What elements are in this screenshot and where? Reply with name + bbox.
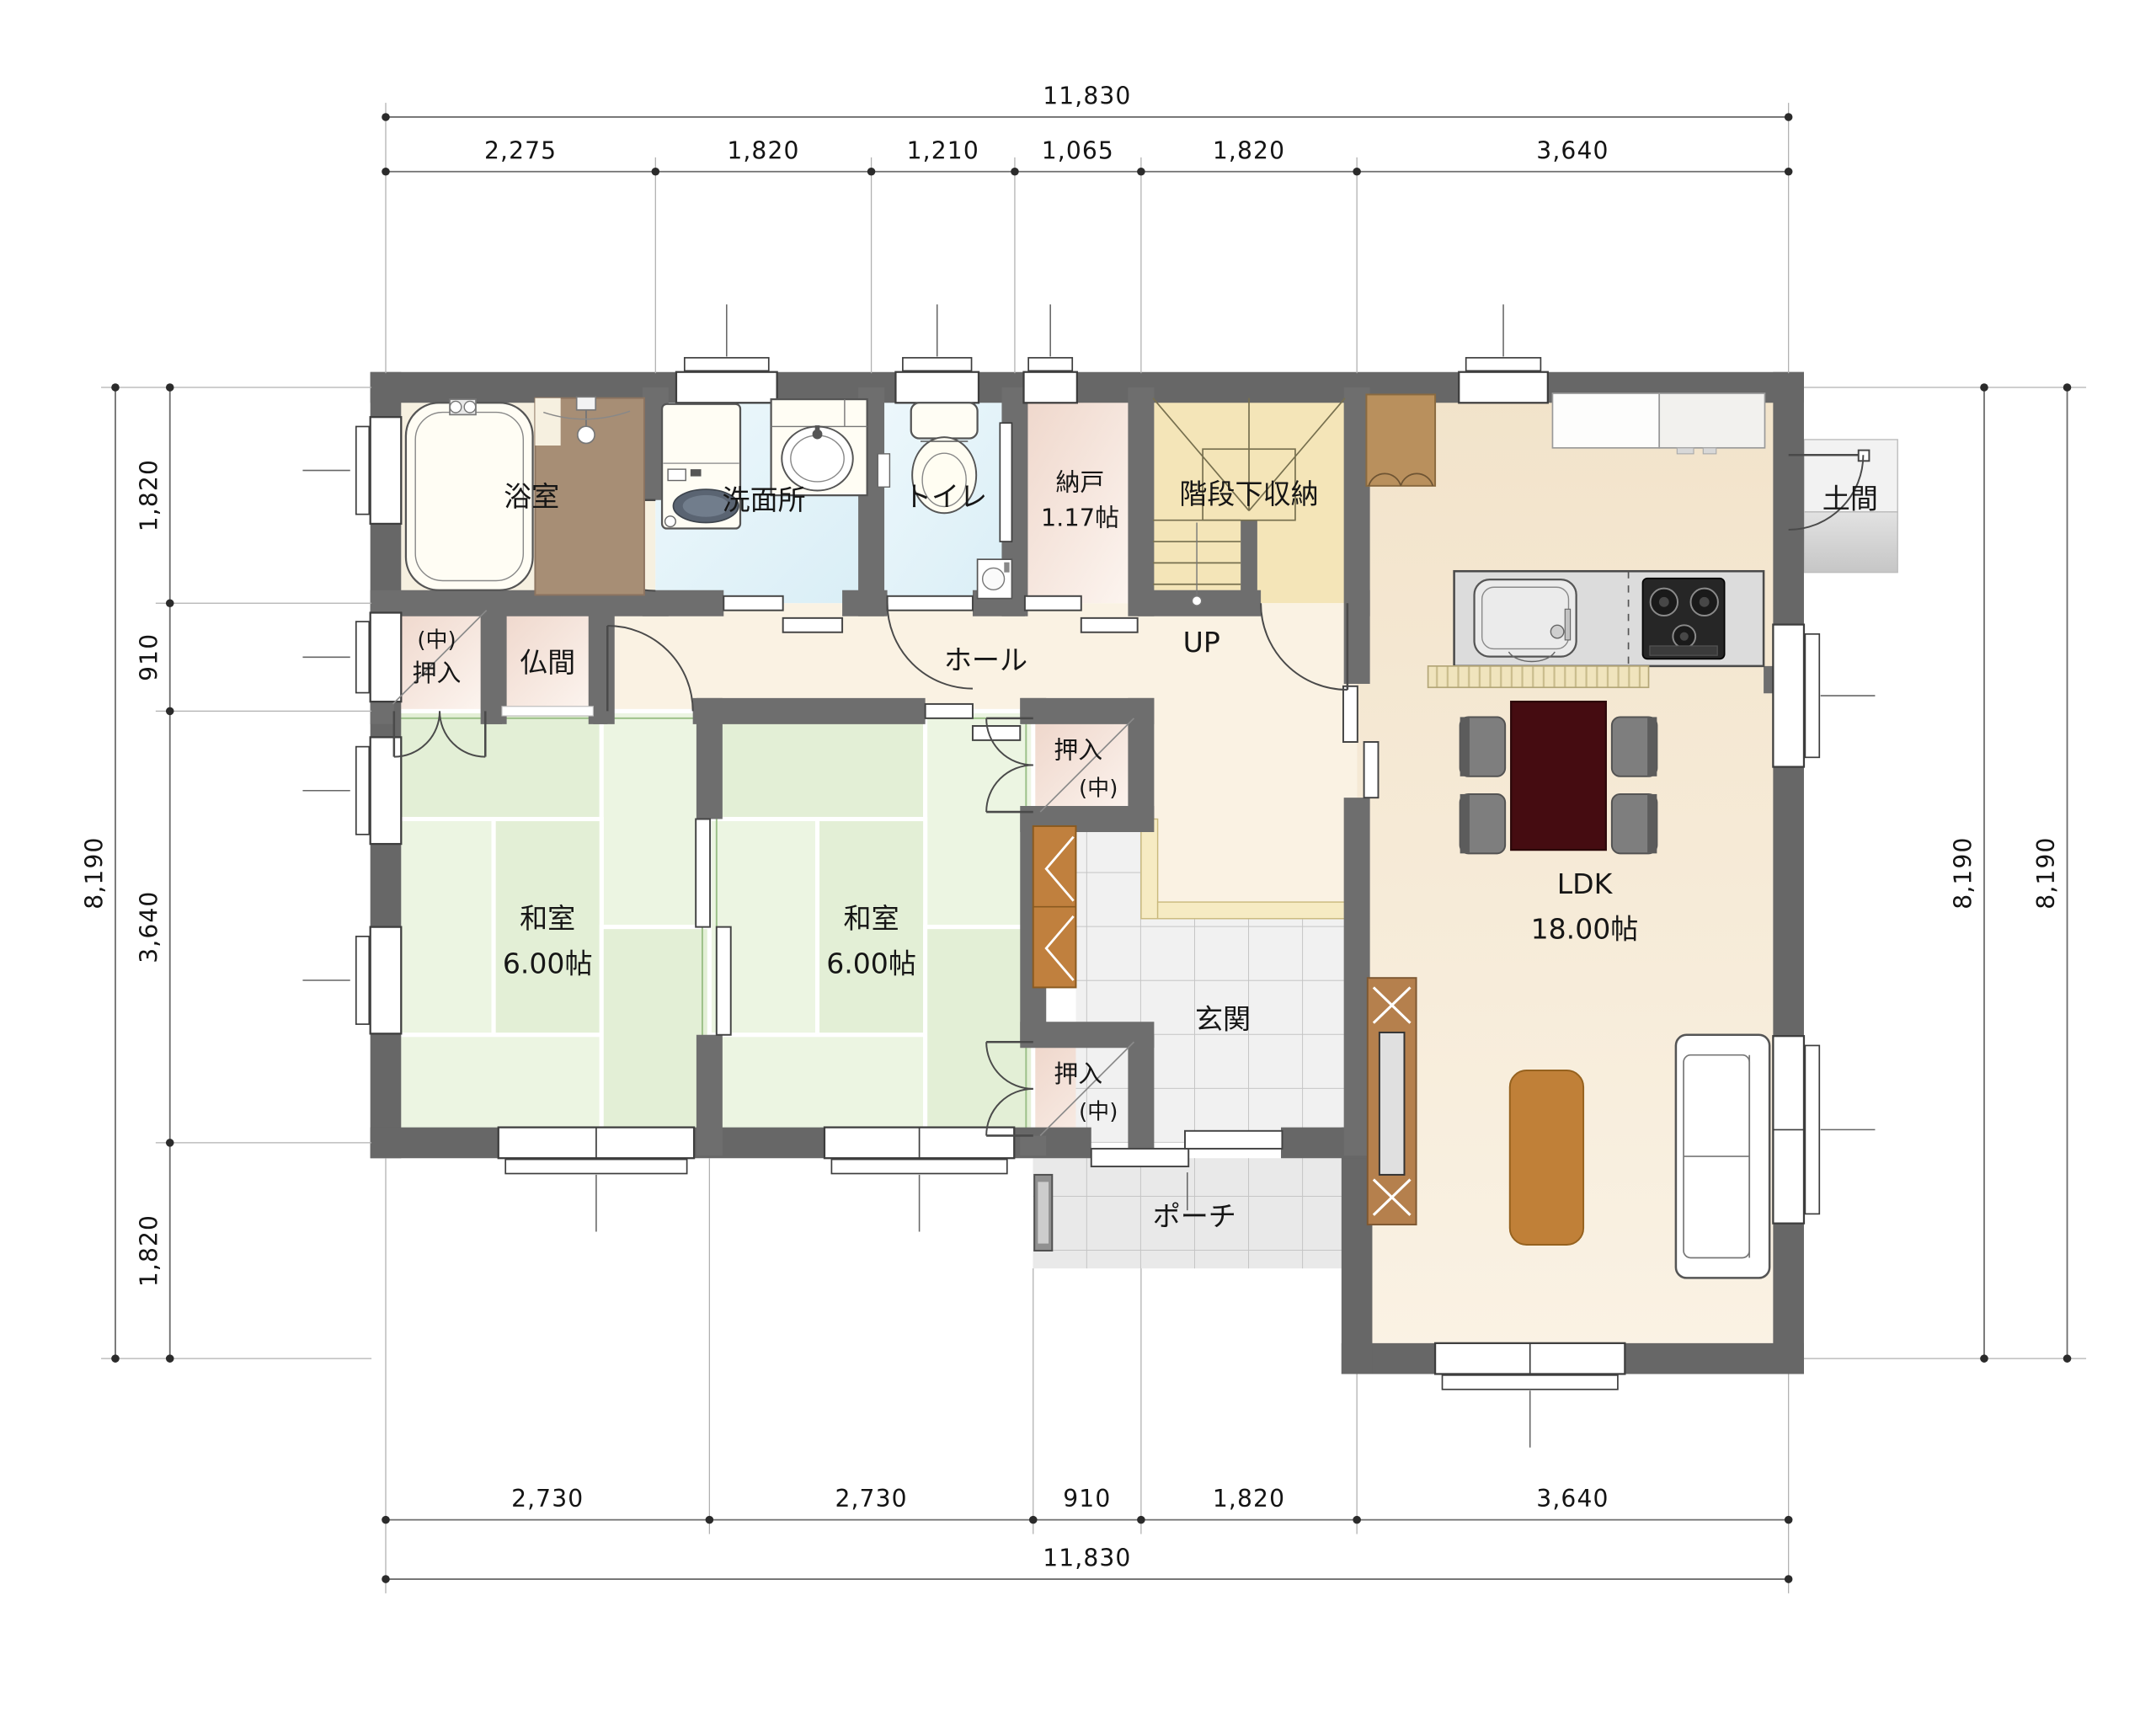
label-storage-size: 1.17帖 — [1041, 504, 1119, 532]
dim-bottom-total: 11,830 — [1043, 1545, 1131, 1572]
window-washitsu2-bottom — [825, 1128, 1014, 1232]
window-kitchen-top — [1459, 304, 1548, 403]
label-butsuma: 仏間 — [520, 646, 575, 679]
label-closet-naka-2: 押入 — [413, 659, 462, 687]
genkan-step-edge-v — [1141, 819, 1158, 919]
stair-stub-wall — [1241, 520, 1257, 604]
toilet-hand-basin — [978, 559, 1012, 598]
label-stairs-storage: 階段下収納 — [1179, 478, 1318, 510]
dim-top-seg-5: 3,640 — [1536, 136, 1609, 164]
counter-bar — [1428, 666, 1649, 687]
toilet-tank — [911, 403, 978, 438]
dim-bottom-seg-2: 910 — [1063, 1485, 1111, 1513]
kitchen-sink — [1475, 579, 1577, 661]
coffee-table — [1510, 1070, 1583, 1245]
dim-top-seg-0: 2,275 — [484, 136, 557, 164]
label-washitsu-2-size: 6.00帖 — [826, 947, 916, 980]
window-ldk-bottom — [1435, 1343, 1625, 1448]
dim-right-inner: 8,190 — [1949, 836, 1977, 909]
label-doma: 土間 — [1822, 483, 1878, 515]
dim-bottom-seg-4: 3,640 — [1536, 1485, 1609, 1513]
sofa — [1676, 1035, 1769, 1278]
kitchen-cabinet-2 — [1659, 393, 1764, 448]
label-bath: 浴室 — [504, 480, 559, 513]
vanity-sink — [771, 399, 867, 495]
label-genkan: 玄関 — [1195, 1003, 1251, 1036]
dim-top-total: 11,830 — [1043, 82, 1131, 109]
dim-left-total: 8,190 — [80, 836, 108, 909]
floor-plan-page: 浴室 洗面所 トイレ 納戸 1.17帖 階段下収納 UP 土間 ホール (中) … — [0, 0, 2156, 1729]
dim-top-seg-1: 1,820 — [727, 136, 799, 164]
label-washitsu-1: 和室 — [520, 902, 575, 935]
label-oshiire-upper-1: 押入 — [1054, 736, 1102, 765]
window-closet-left — [302, 613, 401, 702]
label-storage: 納戸 — [1056, 467, 1105, 496]
dim-left-seg-2: 3,640 — [135, 891, 163, 963]
label-washroom: 洗面所 — [723, 483, 806, 516]
dim-left-seg-3: 1,820 — [135, 1214, 163, 1287]
dim-top-seg-3: 1,065 — [1042, 136, 1114, 164]
window-ldk-right-lower — [1773, 1036, 1875, 1223]
label-washitsu-2: 和室 — [843, 902, 899, 935]
dim-right-outer: 8,190 — [2032, 836, 2060, 909]
window-ldk-right-upper — [1773, 625, 1875, 767]
window-washitsu1-left-2 — [302, 927, 401, 1034]
label-porch: ポーチ — [1153, 1199, 1236, 1232]
kitchen-cupboard — [1366, 394, 1435, 485]
dim-left-seg-0: 1,820 — [135, 459, 163, 531]
label-hall: ホール — [944, 643, 1027, 676]
genkan-step-edge-h — [1158, 902, 1358, 919]
dim-left-seg-1: 910 — [135, 633, 163, 681]
gas-stove — [1642, 579, 1724, 659]
faucet-icon — [1550, 625, 1563, 638]
butsuma-threshold — [502, 707, 593, 716]
window-washitsu1-bottom — [499, 1128, 694, 1232]
window-storage-top — [1024, 304, 1077, 403]
label-oshiire-upper-2: (中) — [1079, 776, 1118, 801]
window-toilet-top — [895, 304, 979, 403]
doma-lower — [1804, 512, 1897, 573]
dim-bottom-seg-0: 2,730 — [511, 1485, 584, 1513]
floor-plan-drawing: 浴室 洗面所 トイレ 納戸 1.17帖 階段下収納 UP 土間 ホール (中) … — [0, 0, 2156, 1729]
window-bath-left — [302, 417, 401, 524]
tv — [1380, 1033, 1405, 1175]
label-ldk-size: 18.00帖 — [1531, 913, 1639, 946]
label-ldk: LDK — [1557, 867, 1614, 900]
label-closet-naka-1: (中) — [417, 627, 456, 653]
label-oshiire-lower-2: (中) — [1079, 1100, 1118, 1125]
dim-top-seg-4: 1,820 — [1213, 136, 1285, 164]
window-toilet-counter — [1000, 423, 1011, 542]
window-washitsu1-left-1 — [302, 737, 401, 844]
dim-bottom-seg-1: 2,730 — [835, 1485, 907, 1513]
label-oshiire-lower-1: 押入 — [1054, 1059, 1102, 1088]
label-washitsu-1-size: 6.00帖 — [503, 947, 593, 980]
window-washroom-top — [676, 304, 777, 403]
label-toilet: トイレ — [904, 480, 987, 513]
dim-bottom-seg-3: 1,820 — [1213, 1485, 1285, 1513]
kitchen-cabinet-1 — [1552, 393, 1659, 448]
label-up: UP — [1183, 626, 1220, 659]
toilet-remote — [878, 454, 889, 487]
dining-table — [1511, 702, 1606, 850]
dim-top-seg-2: 1,210 — [907, 136, 979, 164]
